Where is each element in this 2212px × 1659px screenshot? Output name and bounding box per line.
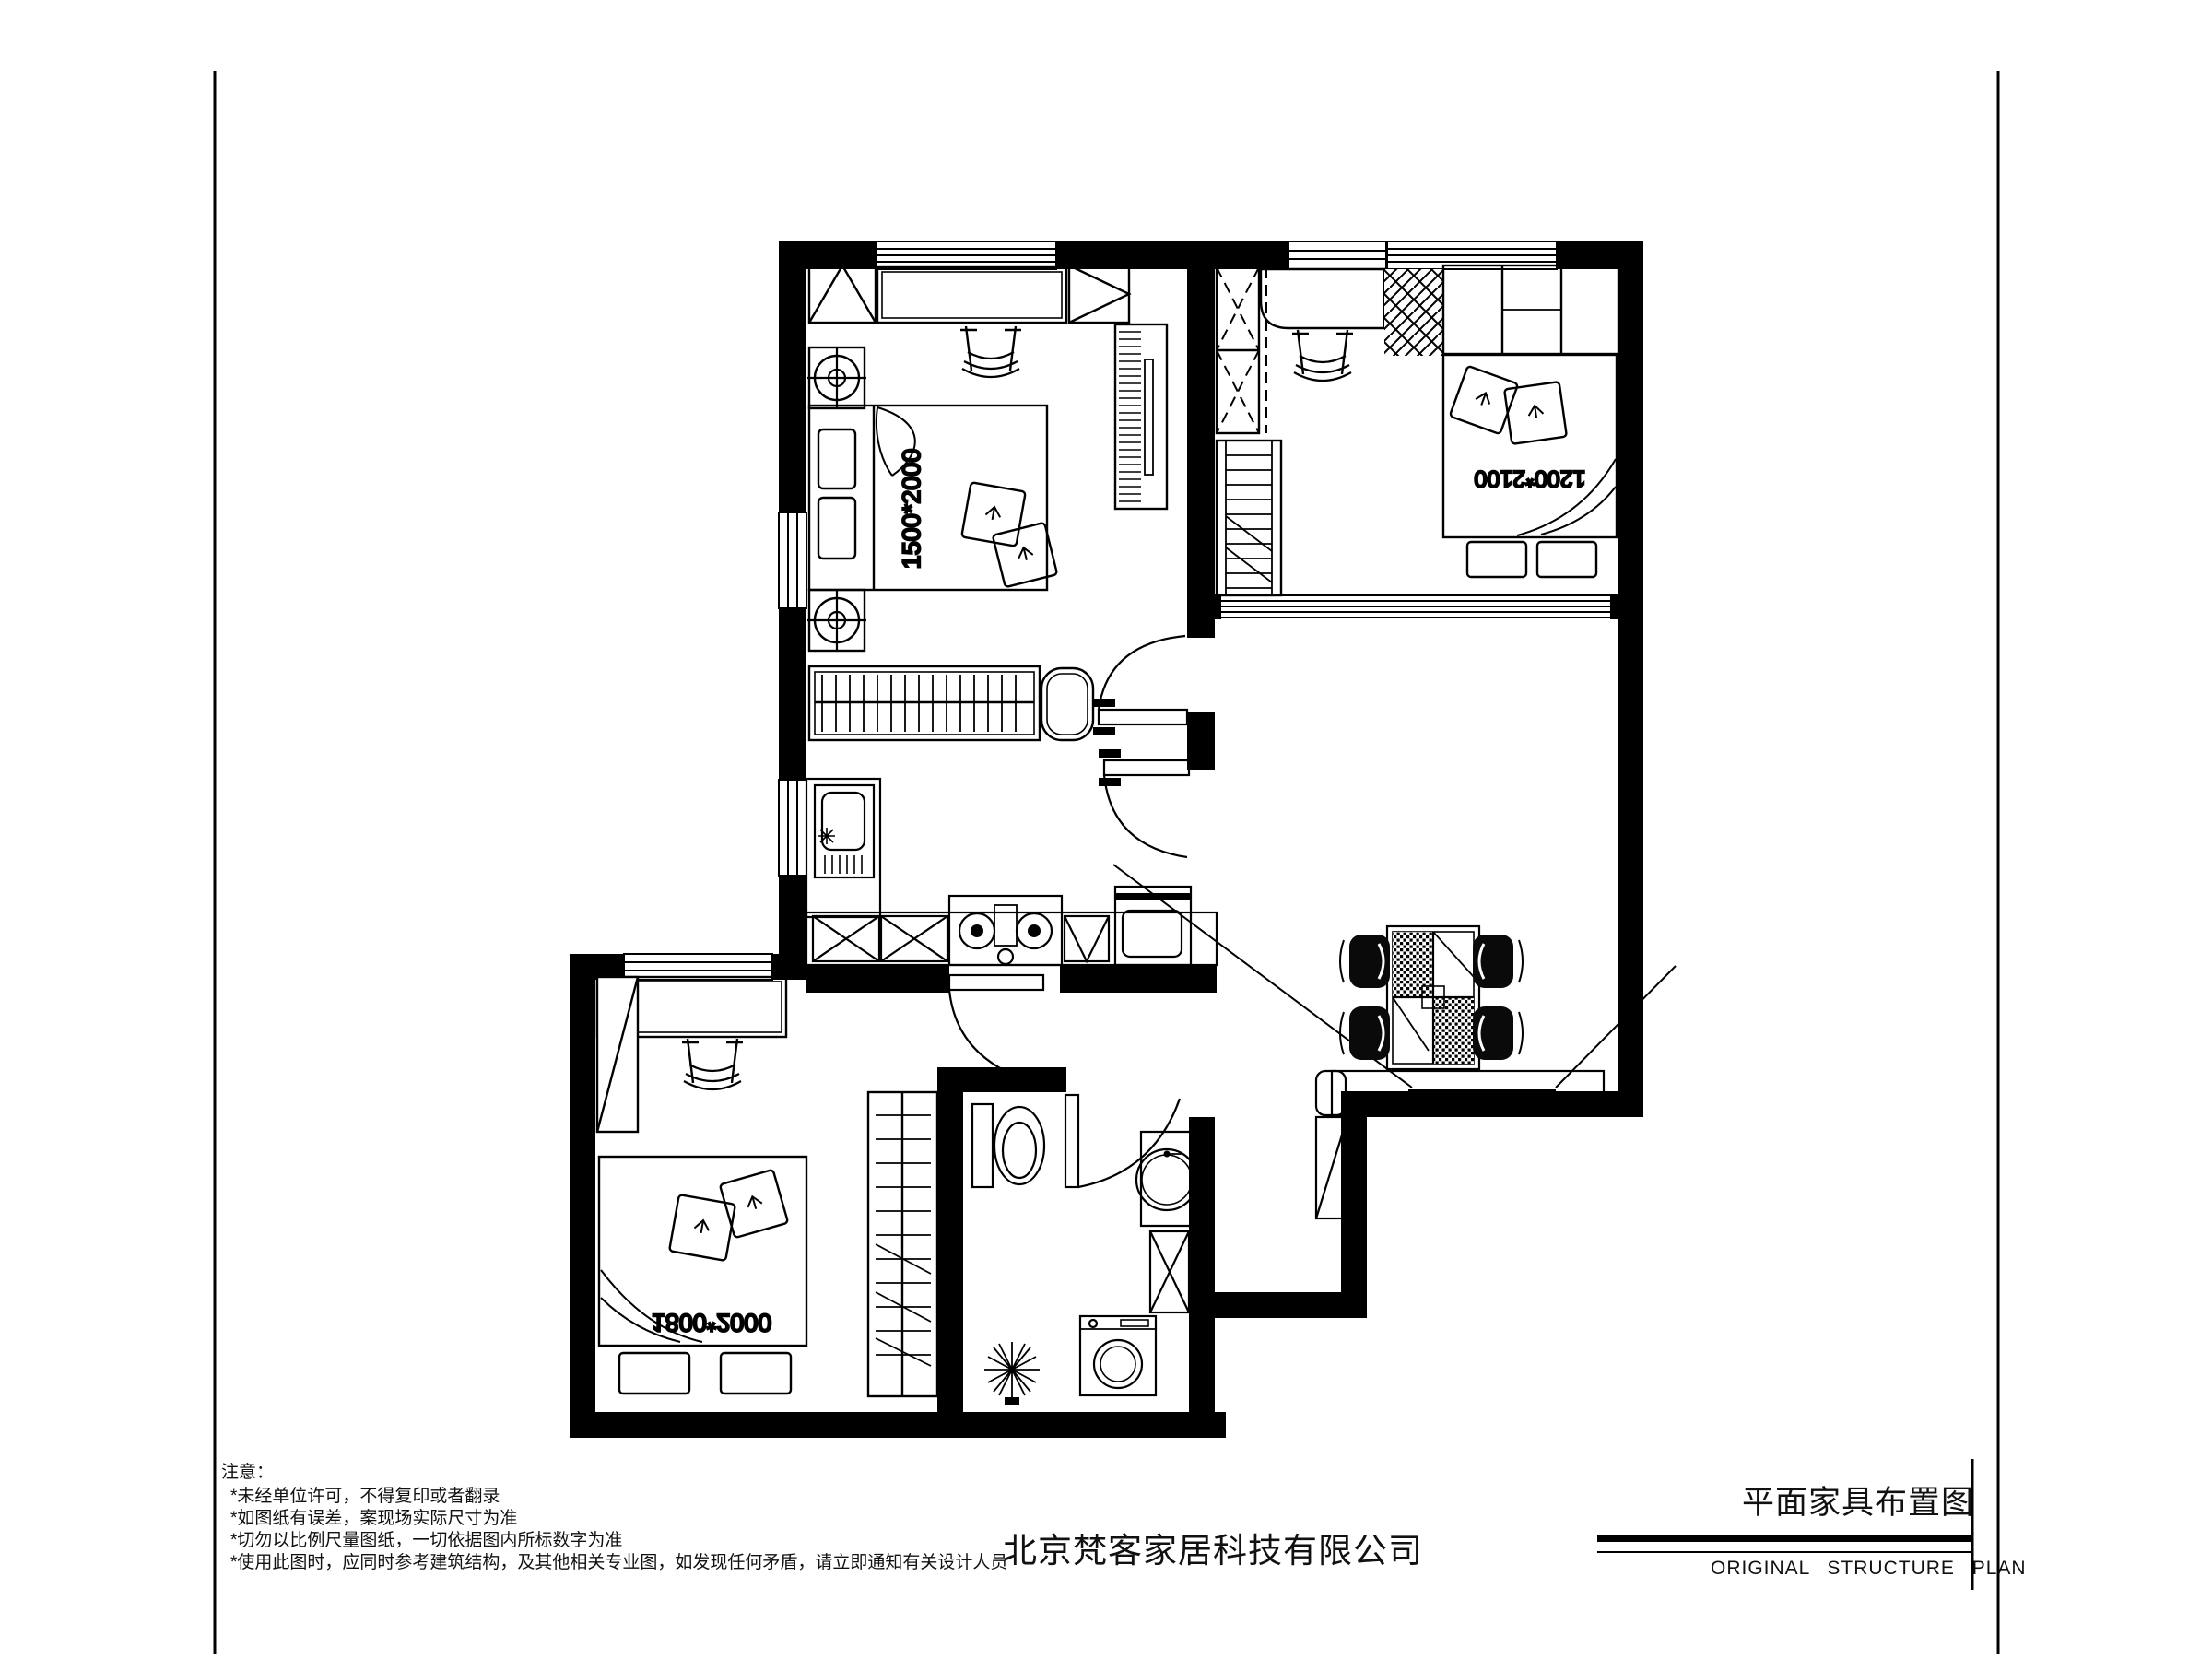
bedroom2: 1200*2100 — [1217, 265, 1618, 595]
door-swing-icon — [1093, 636, 1187, 735]
desk-icon — [1261, 269, 1384, 328]
window-icon — [876, 241, 1056, 269]
window-icon — [779, 512, 806, 608]
nightstand-icon — [807, 347, 866, 408]
bed2-size-label: 1200*2100 — [1475, 465, 1586, 491]
bed1-size-label: 1500*2000 — [898, 449, 925, 570]
wardrobe-icon — [809, 265, 876, 323]
toilet-icon — [972, 1104, 1044, 1187]
window-band-bedroom2 — [1210, 594, 1621, 619]
chair-icon — [960, 326, 1021, 377]
chair-icon — [1292, 330, 1353, 381]
drawing-sheet: 1500*2000 — [0, 0, 2212, 1659]
hall-doors — [1093, 636, 1189, 857]
double-bed-icon: 1500*2000 — [809, 406, 1057, 590]
cushion-icon — [619, 1353, 791, 1394]
drawing-title-en: ORIGINAL STRUCTURE PLAN — [1711, 1558, 2027, 1580]
kitchen — [806, 779, 1217, 1084]
table-lamp-icon — [807, 348, 866, 407]
windows — [624, 241, 1621, 980]
cushion-icon — [1467, 542, 1596, 577]
desk-icon — [877, 267, 1066, 323]
floor-plan-drawing: 1500*2000 — [0, 0, 2212, 1659]
kitchen-sink-icon — [815, 785, 874, 877]
window-icon — [779, 780, 806, 876]
bedroom1: 1500*2000 — [807, 265, 1167, 740]
walls — [570, 241, 1643, 1438]
dining-table-icon — [1387, 926, 1479, 1069]
bedroom3: 1800*2000 — [597, 977, 937, 1396]
entry-opening — [1288, 241, 1386, 269]
wardrobe-icon — [597, 977, 638, 1132]
entry-mat-icon — [1384, 269, 1443, 356]
drying-rack-icon — [1217, 441, 1281, 595]
chair-icon — [682, 1039, 743, 1089]
cabinet-icon — [813, 916, 947, 961]
pocket-door-icon — [1041, 668, 1093, 740]
wardrobe-icon — [1443, 265, 1618, 354]
note-line: *切勿以比例尺量图纸，一切依据图内所标数字为准 — [221, 1530, 1007, 1552]
company-name: 北京梵客家居科技有限公司 — [1003, 1523, 1423, 1572]
note-line: *未经单位许可，不得复印或者翻录 — [221, 1486, 1007, 1508]
bathroom — [972, 1095, 1197, 1405]
sight-line — [1556, 966, 1676, 1088]
notes-block: 注意： *未经单位许可，不得复印或者翻录 *如图纸有误差，案现场实际尺寸为准 *… — [221, 1462, 1007, 1574]
note-line: *如图纸有误差，案现场实际尺寸为准 — [221, 1508, 1007, 1530]
radiator-bench-icon — [809, 666, 1040, 740]
plant-icon — [984, 1342, 1040, 1405]
washing-machine-icon — [1080, 1316, 1156, 1395]
bed3-size-label: 1800*2000 — [652, 1309, 772, 1336]
oven-icon — [1115, 887, 1191, 965]
notes-title: 注意： — [221, 1462, 1007, 1484]
wardrobe-icon — [1069, 265, 1129, 323]
cabinet-icon — [1065, 916, 1109, 961]
door-swing-icon — [1099, 749, 1189, 857]
door-swing-icon — [1065, 1095, 1180, 1187]
note-line: *使用此图时，应同时参考建筑结构，及其他相关专业图，如发现任何矛盾，请立即通知有… — [221, 1552, 1007, 1574]
tv-cabinet-icon — [1115, 324, 1167, 509]
drawing-title-cn: 平面家具布置图 — [1742, 1477, 1974, 1524]
cabinet-icon — [1150, 1231, 1189, 1312]
single-bed-icon: 1200*2100 — [1443, 355, 1617, 537]
nightstand-icon — [807, 590, 866, 651]
double-bed-icon: 1800*2000 — [599, 1157, 806, 1346]
table-lamp-icon — [807, 591, 866, 650]
wardrobe-icon — [1217, 267, 1266, 433]
wardrobe-icon — [868, 1092, 937, 1396]
gas-stove-icon — [949, 896, 1062, 965]
counter — [806, 779, 880, 917]
washbasin-icon — [1136, 1132, 1197, 1226]
